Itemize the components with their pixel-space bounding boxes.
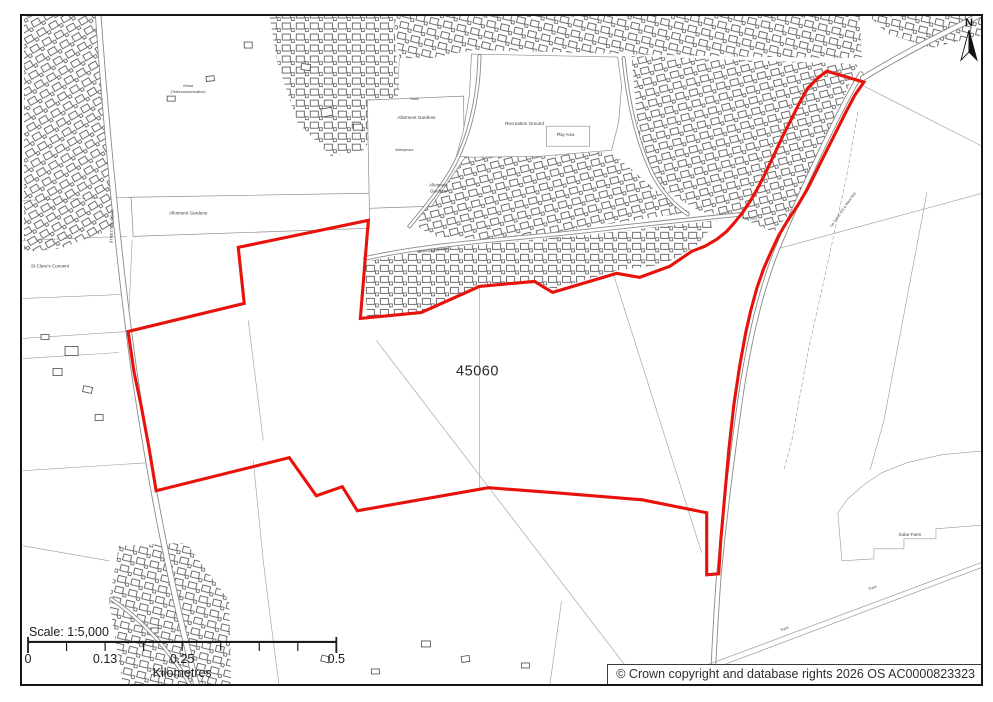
building-footprint: [41, 334, 49, 339]
map-frame: Allotment GardensAllotment GardensAllotm…: [20, 14, 983, 686]
building-footprint: [321, 107, 333, 117]
map-label: Solar Farm: [899, 532, 922, 537]
tracks-layer: [702, 561, 981, 672]
housing-zone: [393, 16, 861, 58]
map-label: Allotment: [429, 182, 448, 187]
map-sheet: Allotment GardensAllotment GardensAllotm…: [0, 0, 993, 702]
scale-tick-013: 0.13: [93, 652, 117, 666]
map-label: St Clare's Convent: [31, 263, 70, 268]
map-label: STRETTON ROAD: [109, 209, 115, 243]
building-footprint: [95, 415, 103, 421]
map-label: Allotment Gardens: [169, 210, 208, 215]
building-footprint: [65, 346, 78, 355]
copyright-notice: © Crown copyright and database rights 20…: [607, 664, 981, 684]
building-footprint: [244, 42, 252, 48]
map-label: Track: [868, 584, 878, 591]
scale-title: Scale: 1:5,000: [29, 625, 109, 639]
parcel-outline: [456, 54, 621, 157]
map-canvas: Allotment GardensAllotment GardensAllotm…: [22, 16, 981, 684]
map-label: Track: [780, 626, 790, 633]
map-label: Mead: [183, 84, 192, 88]
building-footprint: [206, 76, 214, 82]
parcel-outline: [131, 193, 369, 236]
scale-tick-025: 0.25: [170, 652, 194, 666]
scale-tick-0: 0: [25, 652, 32, 666]
site-reference-label: 45060: [456, 364, 499, 380]
building-footprint: [522, 663, 530, 668]
map-label: Play Area: [557, 132, 576, 137]
building-footprint: [53, 369, 62, 376]
map-label: Path (um): [742, 216, 757, 220]
north-label: N: [965, 17, 973, 29]
building-footprint: [353, 124, 362, 130]
map-label: (Telecommunication): [171, 90, 207, 94]
map-label: Recreation Ground: [505, 121, 544, 126]
building-footprint: [421, 641, 430, 647]
building-footprint: [83, 386, 93, 394]
map-label: Track: [410, 97, 419, 101]
building-footprint: [167, 96, 175, 101]
scale-tick-05: 0.5: [328, 652, 345, 666]
scale-unit: Kilometres: [153, 666, 212, 680]
map-label: Allotment Gardens: [397, 115, 436, 120]
building-footprint: [371, 669, 379, 674]
map-label: Gardens: [430, 188, 448, 193]
building-footprint: [301, 63, 311, 70]
map-label: Abbeymore: [395, 148, 413, 152]
building-footprint: [461, 655, 470, 662]
map-label: Co Const, ED & Ward Bdy: [829, 191, 856, 228]
